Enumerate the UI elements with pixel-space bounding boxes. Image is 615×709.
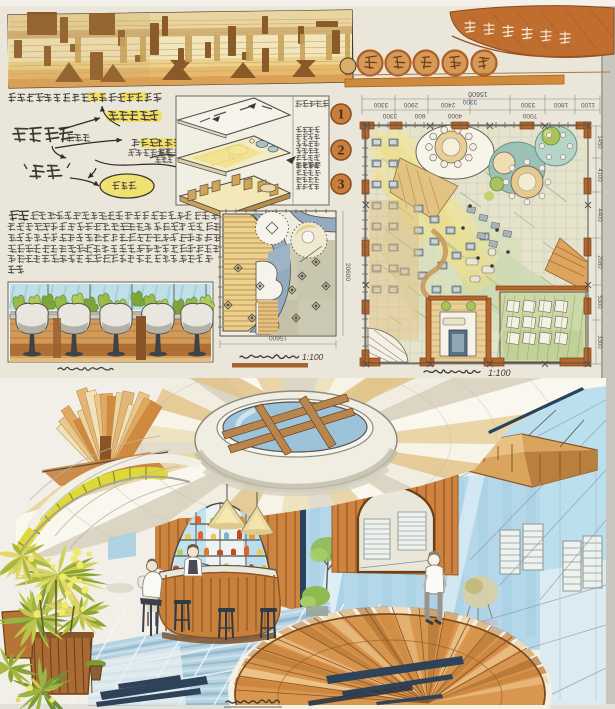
svg-text:1100: 1100 xyxy=(581,101,595,108)
svg-text:1800: 1800 xyxy=(553,101,568,108)
svg-text:3300: 3300 xyxy=(520,101,535,108)
svg-text:2900: 2900 xyxy=(403,101,418,108)
svg-text:5300: 5300 xyxy=(596,295,602,309)
svg-text:1: 1 xyxy=(338,108,345,123)
svg-text:7000: 7000 xyxy=(522,112,537,119)
svg-text:15600: 15600 xyxy=(468,90,488,97)
svg-text:2400: 2400 xyxy=(440,101,455,108)
svg-text:1:100: 1:100 xyxy=(302,352,324,362)
svg-text:4100: 4100 xyxy=(596,168,602,182)
svg-text:600: 600 xyxy=(414,112,425,119)
svg-text:1450: 1450 xyxy=(596,135,602,149)
svg-text:3300: 3300 xyxy=(382,112,397,119)
svg-text:4400: 4400 xyxy=(596,208,602,222)
svg-text:2080: 2080 xyxy=(596,255,602,269)
svg-text:2: 2 xyxy=(338,144,345,159)
svg-text:20600: 20600 xyxy=(344,263,351,281)
svg-text:3300: 3300 xyxy=(373,101,388,108)
svg-text:3300: 3300 xyxy=(462,98,477,105)
svg-text:3: 3 xyxy=(338,178,345,193)
svg-text:1:100: 1:100 xyxy=(488,368,511,378)
svg-text:3300: 3300 xyxy=(596,335,602,349)
svg-text:15600: 15600 xyxy=(269,334,287,341)
svg-text:4000: 4000 xyxy=(447,112,462,119)
